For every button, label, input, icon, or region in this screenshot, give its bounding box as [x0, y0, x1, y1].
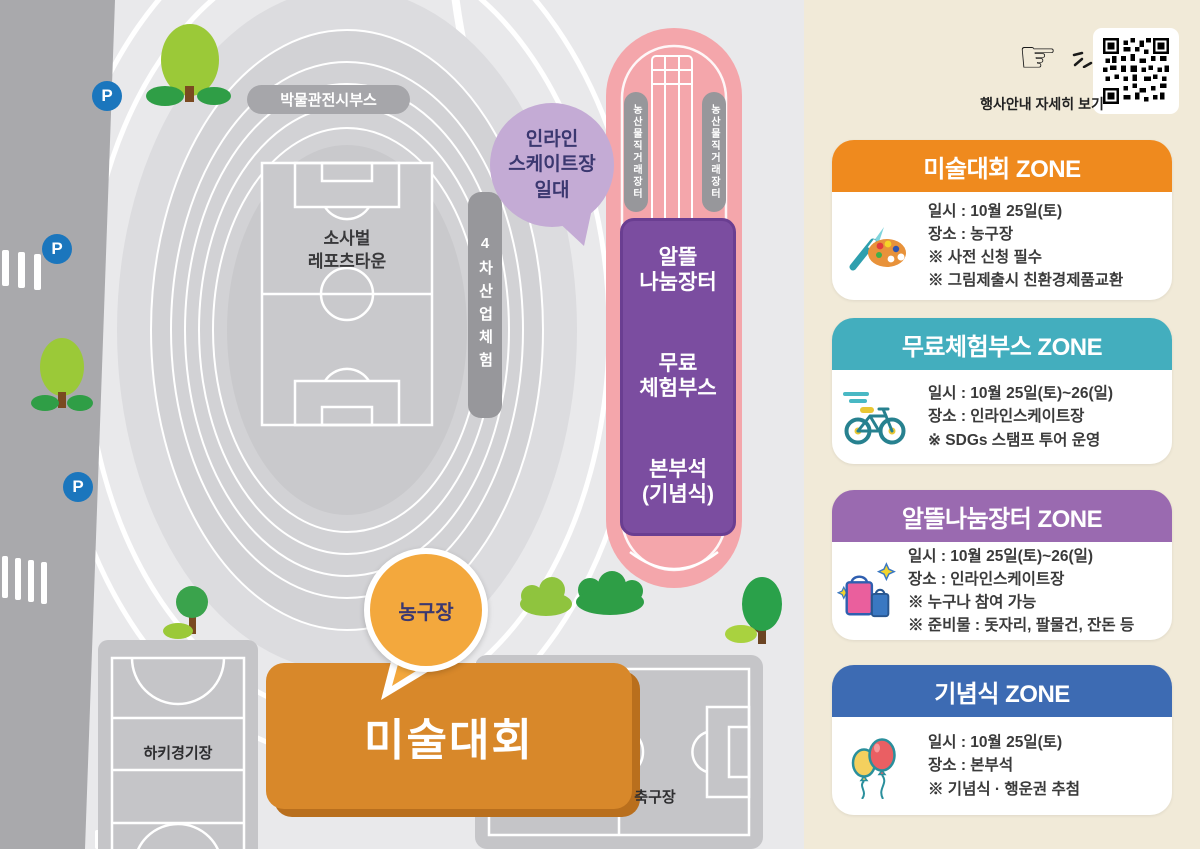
qr-caption: 행사안내 자세히 보기 — [974, 94, 1110, 114]
zone-card-flea-market: 알뜰나눔장터 ZONE 일시 : 10월 25일(토)~26(일) 장소 : 인… — [832, 490, 1172, 640]
parking-icon: P — [92, 81, 122, 111]
flea-market-label: 알뜰 나눔장터 — [623, 245, 733, 295]
event-map-poster: 박물관전시부스 소사벌 레포츠타운 4차산업체험 농산물직거래장터 농산물직거래… — [0, 0, 1200, 849]
hq-ceremony-label: 본부석 (기념식) — [623, 457, 733, 507]
card-line: ※ 사전 신청 필수 — [928, 246, 1166, 269]
soccer-field-label: 축구장 — [600, 786, 710, 807]
balloons-icon — [846, 733, 904, 799]
card-line: ※ 누구나 참여 가능 — [908, 591, 1166, 614]
basketball-court-callout: 농구장 — [364, 548, 488, 672]
inline-skate-callout: 인라인 스케이트장 일대 — [490, 103, 614, 227]
shopping-bags-icon — [837, 560, 899, 622]
museum-booth-label: 박물관전시부스 — [280, 89, 377, 110]
card-line: 일시 : 10월 25일(토) — [928, 200, 1166, 223]
card-line: 장소 : 농구장 — [928, 223, 1166, 246]
event-zone-stack: 알뜰 나눔장터 무료 체험부스 본부석 (기념식) — [620, 218, 736, 536]
card-title: 기념식 ZONE — [832, 665, 1172, 717]
card-line: ※ 준비물 : 돗자리, 팔물건, 잔돈 등 — [908, 614, 1166, 637]
card-line: 장소 : 인라인스케이트장 — [928, 405, 1166, 428]
card-line: 장소 : 인라인스케이트장 — [908, 568, 1166, 591]
zone-card-free-booth: 무료체험부스 ZONE 일시 : 10월 25일(토)~26 — [832, 318, 1172, 464]
bicycle-icon — [841, 386, 909, 448]
card-line: 일시 : 10월 25일(토)~26(일) — [908, 545, 1166, 568]
card-line: ※ 기념식 · 행운권 추첨 — [928, 778, 1166, 801]
parking-icon: P — [42, 234, 72, 264]
hockey-field-label: 하키경기장 — [113, 742, 243, 763]
card-line: ※ 그림제출시 친환경제품교환 — [928, 269, 1166, 292]
zone-card-ceremony: 기념식 ZONE 일시 : 10월 25일(토) 장소 : 본부석 — [832, 665, 1172, 815]
card-title: 무료체험부스 ZONE — [832, 318, 1172, 370]
free-booth-label: 무료 체험부스 — [623, 351, 733, 401]
pointing-hand-icon: ☞ — [1018, 36, 1057, 80]
museum-booth-pill: 박물관전시부스 — [247, 85, 410, 114]
card-line: 장소 : 본부석 — [928, 754, 1166, 777]
produce-market-pill: 농산물직거래장터 — [624, 92, 648, 212]
card-title: 미술대회 ZONE — [832, 140, 1172, 192]
card-title: 알뜰나눔장터 ZONE — [832, 490, 1172, 542]
click-spark-icon — [1072, 40, 1094, 68]
card-line: 일시 : 10월 25일(토) — [928, 731, 1166, 754]
zone-card-art-contest: 미술대회 ZONE — [832, 140, 1172, 300]
stadium-pitch — [262, 163, 432, 425]
palette-icon — [840, 214, 910, 278]
parking-icon: P — [63, 472, 93, 502]
art-contest-label: 미술대회 — [266, 663, 632, 809]
card-line: 일시 : 10월 25일(토)~26(일) — [928, 382, 1166, 405]
info-panel: ☞ 행사안내 자세히 보기 — [804, 0, 1200, 849]
industry-experience-pill: 4차산업체험 — [468, 192, 502, 418]
card-line: ※ SDGs 스탬프 투어 운영 — [928, 429, 1166, 452]
stadium-name-label: 소사벌 레포츠타운 — [267, 228, 427, 274]
qr-pattern — [1103, 38, 1169, 104]
produce-market-pill: 농산물직거래장터 — [702, 92, 726, 212]
